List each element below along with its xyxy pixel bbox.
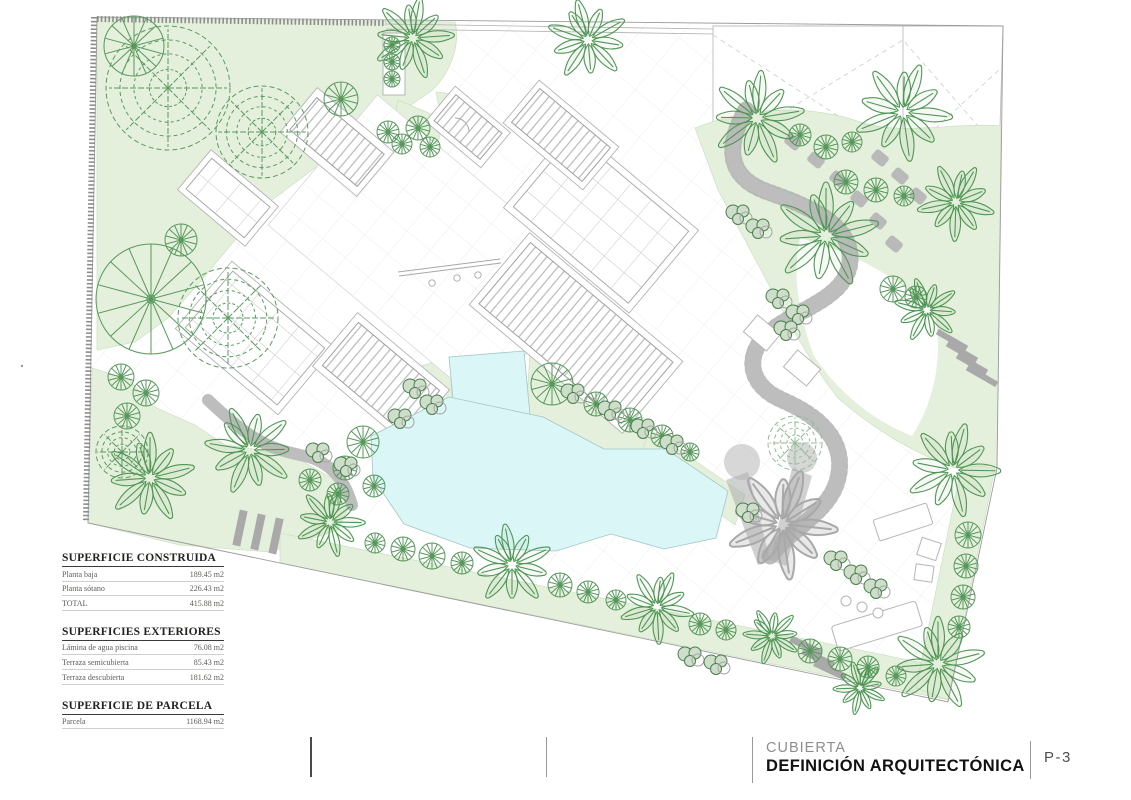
row-value: 1168.94 m2 — [186, 717, 224, 726]
row-label: Parcela — [62, 717, 86, 726]
table-title: SUPERFICIES EXTERIORES — [62, 626, 224, 641]
shrub-icon — [678, 647, 704, 667]
round-tree-icon — [681, 443, 699, 461]
row-value: 76.08 m2 — [194, 643, 224, 652]
table-row: Terraza semicubierta85.43 m2 — [62, 655, 224, 670]
sheet-number: P-3 — [1044, 749, 1072, 766]
table-row: Planta baja189.45 m2 — [62, 567, 224, 582]
titleblock-divider — [310, 737, 312, 777]
row-value: 181.62 m2 — [190, 673, 224, 682]
table-row: TOTAL415.88 m2 — [62, 596, 224, 611]
round-tree-icon — [384, 71, 400, 87]
area-table-constructed: SUPERFICIE CONSTRUIDAPlanta baja189.45 m… — [62, 552, 224, 611]
row-label: Lámina de agua piscina — [62, 643, 138, 652]
area-table-exterior: SUPERFICIES EXTERIORESLámina de agua pis… — [62, 626, 224, 685]
row-value: 226.43 m2 — [190, 584, 224, 593]
row-value: 415.88 m2 — [190, 599, 224, 608]
area-table-parcel: SUPERFICIE DE PARCELAParcela1168.94 m2 — [62, 700, 224, 730]
deciduous-tree-icon — [216, 86, 308, 178]
table-row: Terraza descubierta181.62 m2 — [62, 670, 224, 685]
sheet-title: DEFINICIÓN ARQUITECTÓNICA — [766, 757, 1025, 776]
table-row: Parcela1168.94 m2 — [62, 715, 224, 730]
table-row: Lámina de agua piscina76.08 m2 — [62, 641, 224, 656]
titleblock-divider — [546, 737, 547, 777]
bar-stool — [873, 608, 883, 618]
sheet-phase: CUBIERTA — [766, 740, 846, 756]
survey-dot — [21, 365, 23, 367]
row-label: TOTAL — [62, 599, 87, 608]
table-title: SUPERFICIE CONSTRUIDA — [62, 552, 224, 567]
row-label: Planta sótano — [62, 584, 105, 593]
bar-stool — [841, 596, 851, 606]
titleblock-divider — [1030, 741, 1031, 779]
row-value: 85.43 m2 — [194, 658, 224, 667]
shrub-icon — [704, 655, 730, 675]
titleblock-divider — [752, 737, 753, 783]
side-table — [914, 564, 934, 582]
table-title: SUPERFICIE DE PARCELA — [62, 700, 224, 715]
row-label: Planta baja — [62, 570, 97, 579]
row-label: Terraza descubierta — [62, 673, 124, 682]
area-tables: SUPERFICIE CONSTRUIDAPlanta baja189.45 m… — [62, 552, 224, 744]
row-label: Terraza semicubierta — [62, 658, 129, 667]
table-row: Planta sótano226.43 m2 — [62, 582, 224, 597]
sheet-page: SUPERFICIE CONSTRUIDAPlanta baja189.45 m… — [0, 0, 1131, 800]
bar-stool — [857, 602, 867, 612]
row-value: 189.45 m2 — [190, 570, 224, 579]
